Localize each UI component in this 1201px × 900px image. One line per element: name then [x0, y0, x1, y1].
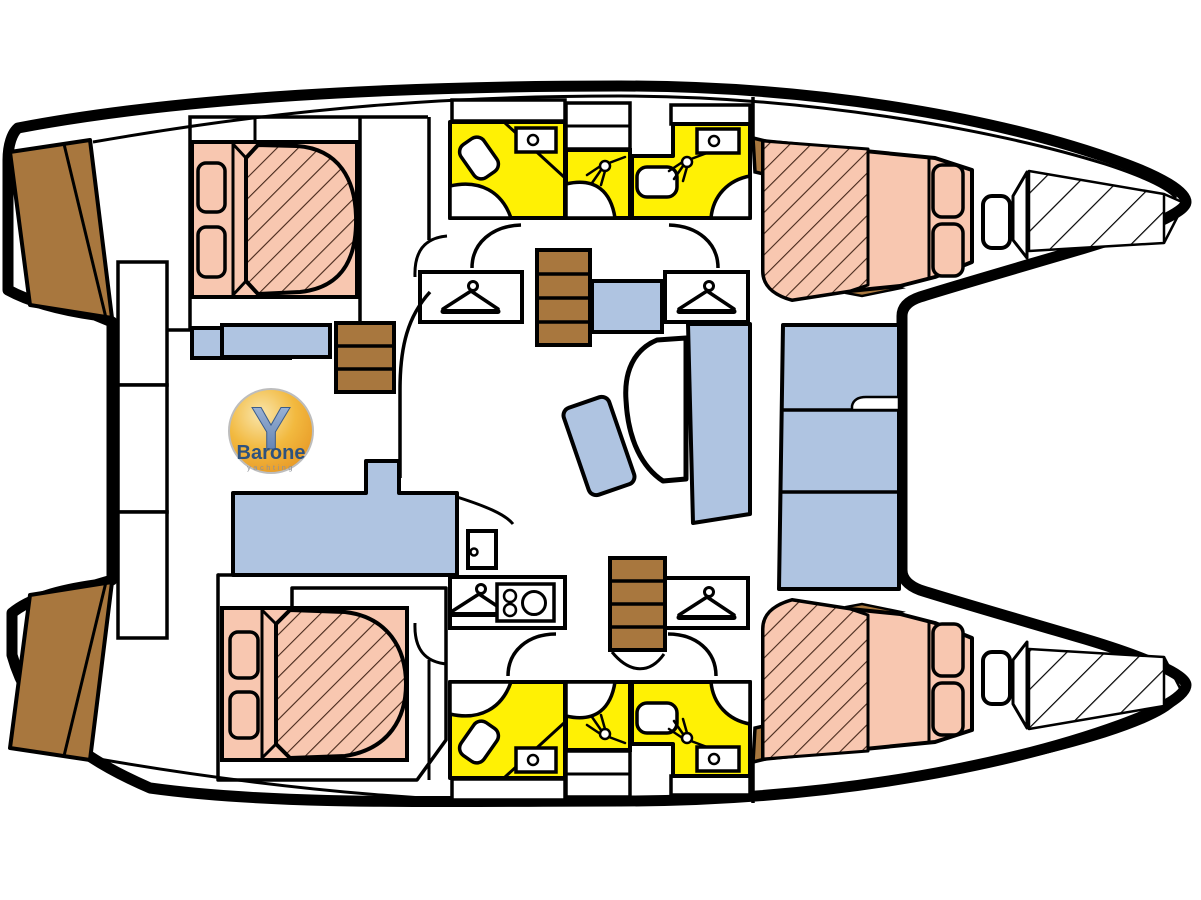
pillow — [933, 224, 963, 276]
stove-burner-small — [504, 604, 516, 616]
port-hull-steps — [336, 323, 394, 392]
mattress-hatched — [763, 141, 868, 300]
toilet — [637, 167, 677, 197]
bow-shelf — [983, 196, 1010, 248]
cabinet — [671, 776, 750, 795]
mattress-hatched — [246, 145, 356, 294]
bow-shelf — [983, 652, 1010, 704]
saloon-sofa-side — [688, 324, 750, 523]
port-wet-rooms — [450, 100, 750, 218]
catamaran-floorplan: Y Barone yachting — [0, 0, 1201, 900]
pillow — [933, 683, 963, 735]
pillow — [230, 692, 258, 738]
floorplan-page: Y Barone yachting — [0, 0, 1201, 900]
pillow — [198, 227, 225, 277]
starboard-wet-rooms — [450, 682, 750, 800]
logo-subtitle: yachting — [247, 463, 295, 472]
pillow — [198, 163, 225, 212]
cabinet — [671, 105, 750, 124]
galley-top-counter — [222, 325, 330, 357]
logo-name: Barone — [237, 442, 306, 464]
seat-bench — [592, 281, 662, 332]
wardrobe — [665, 272, 748, 322]
mattress-hatched — [763, 600, 868, 759]
sink-drain — [528, 135, 538, 145]
mattress-hatched — [276, 610, 406, 758]
sink-drain — [709, 754, 719, 764]
cockpit-lockers — [118, 262, 167, 638]
companionway-steps-port — [537, 250, 590, 345]
stove-burner-small — [504, 590, 516, 602]
cabinet — [452, 779, 565, 800]
pillow — [933, 165, 963, 217]
pillow — [230, 632, 258, 678]
door-handle — [471, 549, 478, 556]
stove-burner-large — [523, 592, 546, 615]
brand-logo: Y Barone yachting — [229, 389, 313, 473]
sink-drain — [709, 136, 719, 146]
companionway-steps-starboard — [610, 558, 665, 650]
pillow — [933, 624, 963, 676]
cabinet — [452, 100, 565, 121]
toilet — [637, 703, 677, 733]
saloon-sofa-forward — [779, 325, 899, 589]
wardrobe — [665, 578, 748, 628]
wardrobe — [420, 272, 522, 322]
sink-drain — [528, 755, 538, 765]
galley-unit — [450, 577, 565, 628]
